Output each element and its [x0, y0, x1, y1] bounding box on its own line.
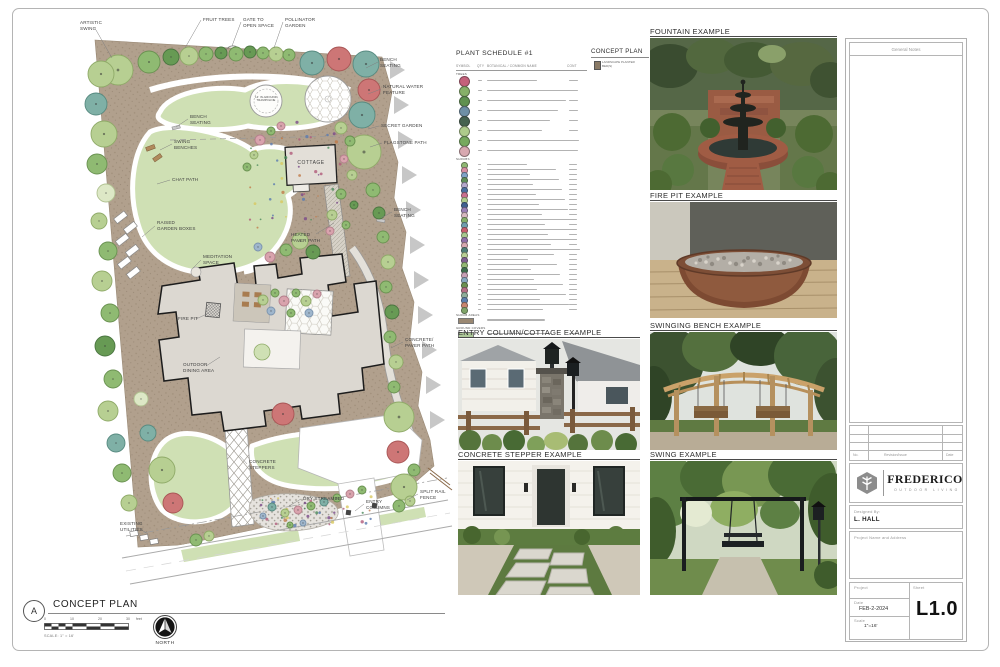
schedule-text: [569, 239, 577, 240]
schedule-text: [478, 274, 481, 275]
schedule-text: [478, 209, 481, 210]
schedule-text: [569, 259, 577, 260]
logo-box: FREDERICO OUTDOOR LIVING: [849, 463, 963, 503]
swing-example: SWING EXAMPLE: [650, 450, 837, 595]
schedule-text: [478, 164, 481, 165]
schedule-text: [569, 284, 577, 285]
schedule-text: [478, 269, 481, 270]
schedule-text: [569, 120, 578, 122]
plant-schedule: PLANT SCHEDULE #1 SYMBOL QTY BOTANICAL /…: [455, 50, 592, 342]
schedule-text: [487, 179, 559, 180]
site-plan: ARTISTIC SWINGFRUIT TREESGATE TO OPEN SP…: [0, 0, 455, 660]
schedule-text: [478, 229, 481, 230]
schedule-text: [569, 229, 577, 230]
schedule-text: [487, 184, 533, 185]
fire-pit-photo: [650, 202, 837, 318]
schedule-text: [478, 189, 481, 190]
schedule-text: [478, 100, 482, 102]
schedule-text: [569, 140, 578, 142]
schedule-text: [487, 274, 560, 275]
schedule-text: [478, 284, 481, 285]
schedule-text: [569, 169, 577, 170]
schedule-text: [478, 214, 481, 215]
schedule-text: [478, 309, 481, 310]
col-cont: CONT: [567, 64, 577, 68]
schedule-text: [487, 209, 568, 210]
schedule-text: [478, 174, 481, 175]
schedule-text: [478, 279, 481, 280]
schedule-text: [569, 110, 578, 112]
schedule-text: [487, 194, 536, 195]
schedule-text: [478, 259, 481, 260]
entry-column: [372, 503, 378, 509]
concrete-stepper-example-label: CONCRETE STEPPER EXAMPLE: [458, 450, 640, 460]
site-plan-drawing: [0, 0, 455, 660]
revision-table: No. Revision/Issue Date: [849, 425, 963, 461]
project-label: Project: [854, 585, 868, 590]
schedule-text: [569, 264, 577, 265]
schedule-text: [478, 264, 481, 265]
fire-pit-example: FIRE PIT EXAMPLE: [650, 191, 837, 318]
project-box: Project Name and Address: [849, 531, 963, 579]
schedule-text: [569, 80, 578, 82]
schedule-text: [487, 289, 537, 290]
swinging-bench-example-label: SWINGING BENCH EXAMPLE: [650, 321, 837, 331]
schedule-text: [487, 204, 539, 205]
schedule-text: [478, 299, 481, 300]
designer-box: Designed By: L. HALL: [849, 505, 963, 529]
schedule-text: [478, 224, 481, 225]
fire-pit: [205, 302, 220, 317]
schedule-text: [487, 199, 565, 200]
schedule-text: [569, 150, 578, 152]
detail-letter-badge: A: [23, 600, 45, 622]
schedule-text: [487, 249, 580, 250]
north-label: NORTH: [150, 641, 180, 646]
sheet-number: L1.0: [911, 598, 963, 621]
schedule-text: [569, 299, 577, 300]
schedule-text: [487, 254, 554, 255]
group-shrub-areas: SHRUB AREAS: [456, 313, 480, 317]
fountain-photo: [650, 38, 837, 190]
schedule-text: [569, 294, 577, 295]
group-shrubs: SHRUBS: [456, 157, 470, 161]
swinging-bench-photo: [650, 332, 837, 450]
schedule-text: [478, 169, 481, 170]
designed-by-label: Designed By:: [854, 509, 880, 514]
scale-value: 1"=16': [864, 624, 877, 629]
trampoline-label: 14' IN-GROUND TRAMPOLINE: [250, 96, 282, 103]
project-name-label: Project Name and Address: [854, 535, 906, 540]
schedule-text: [569, 249, 577, 250]
schedule-text: [487, 294, 566, 295]
schedule-text: [487, 164, 527, 165]
concrete-stepper-example: CONCRETE STEPPER EXAMPLE: [458, 450, 640, 595]
rev-col-revision: Revision/Issue: [884, 453, 907, 457]
schedule-text: [487, 214, 542, 215]
frederico-logo-icon: [855, 471, 879, 495]
schedule-text: [569, 204, 577, 205]
dining-patio: [243, 329, 300, 369]
scale-note: SCALE: 1" = 16': [44, 634, 74, 638]
cottage-label: COTTAGE: [286, 160, 336, 166]
schedule-text: [487, 100, 566, 102]
schedule-text: [487, 264, 557, 265]
schedule-text: [478, 110, 482, 112]
schedule-text: [478, 204, 481, 205]
concept-plan-legend: CONCEPT PLAN LANDSCAPE PLANTER BED(S): [591, 48, 649, 58]
scale-bar: [44, 623, 130, 631]
schedule-text: [569, 219, 577, 220]
schedule-text: [478, 80, 482, 82]
schedule-text: [487, 239, 577, 240]
scale-label: Scale: [854, 618, 865, 623]
schedule-text: [487, 140, 579, 142]
north-arrow-icon: [150, 613, 180, 641]
schedule-text: [569, 164, 577, 165]
schedule-text: [569, 209, 577, 210]
scale-tick: 0: [44, 617, 46, 621]
schedule-text: [478, 239, 481, 240]
schedule-text: [487, 189, 562, 190]
plant-schedule-title: PLANT SCHEDULE #1: [456, 50, 533, 57]
planter-bed-swatch: [594, 61, 601, 70]
schedule-header-rule: [456, 70, 587, 71]
schedule-text: [569, 194, 577, 195]
schedule-text: [487, 224, 545, 225]
schedule-text: [569, 234, 577, 235]
schedule-text: [478, 194, 481, 195]
schedule-text: [569, 184, 577, 185]
scale-tick: 30: [126, 617, 130, 621]
legend-title: CONCEPT PLAN: [591, 48, 649, 58]
schedule-text: [487, 284, 563, 285]
meditation-space: [191, 267, 201, 277]
schedule-text: [569, 244, 577, 245]
schedule-text: [569, 179, 577, 180]
brand-subtitle: OUTDOOR LIVING: [889, 488, 965, 492]
schedule-text: [569, 269, 577, 270]
schedule-text: [478, 90, 482, 92]
schedule-text: [569, 199, 577, 200]
schedule-text: [487, 304, 569, 305]
schedule-text: [478, 249, 481, 250]
schedule-text: [569, 309, 577, 310]
schedule-text: [478, 140, 482, 142]
entry-column-example-label: ENTRY COLUMN/COTTAGE EXAMPLE: [458, 328, 640, 338]
brand-name: FREDERICO: [887, 472, 963, 487]
schedule-text: [478, 254, 481, 255]
swing-photo: [650, 461, 837, 595]
schedule-text: [478, 219, 481, 220]
concrete-stepper-photo: [458, 461, 640, 595]
date-value: FEB-2-2024: [859, 606, 888, 612]
schedule-text: [478, 184, 481, 185]
general-notes-body: [849, 55, 963, 423]
schedule-text: [478, 150, 482, 152]
schedule-text: [569, 254, 577, 255]
col-name: BOTANICAL / COMMON NAME: [487, 64, 537, 68]
schedule-text: [487, 299, 540, 300]
shrub-areas-swatch: [458, 318, 474, 324]
schedule-text: [487, 150, 571, 152]
designer-name: L. HALL: [854, 516, 880, 523]
col-symbol: SYMBOL: [456, 64, 471, 68]
schedule-text: [487, 120, 550, 122]
date-label: Date: [854, 600, 863, 605]
entry-column-example: ENTRY COLUMN/COTTAGE EXAMPLE: [458, 328, 640, 450]
schedule-text: [569, 289, 577, 290]
scale-unit: feet: [136, 617, 142, 621]
secret-garden-patio: [305, 76, 351, 122]
rev-col-date: Date: [946, 453, 953, 457]
schedule-text: [478, 294, 481, 295]
schedule-text: [487, 174, 530, 175]
schedule-text: [569, 274, 577, 275]
col-qty: QTY: [477, 64, 484, 68]
schedule-text: [487, 309, 543, 310]
schedule-text: [487, 169, 556, 170]
schedule-text: [487, 80, 537, 82]
entry-column-photo: [458, 339, 640, 450]
schedule-text: [487, 234, 548, 235]
schedule-text: [569, 214, 577, 215]
plant-symbol: [459, 146, 470, 157]
swing-example-label: SWING EXAMPLE: [650, 450, 837, 460]
schedule-text: [569, 279, 577, 280]
rev-col-no: No.: [853, 453, 858, 457]
schedule-text: [478, 304, 481, 305]
schedule-text: [487, 130, 542, 132]
sheet-label: Sheet: [913, 585, 924, 590]
schedule-text: [569, 130, 578, 132]
schedule-text: [487, 319, 545, 321]
legend-item: LANDSCAPE PLANTER BED(S): [602, 61, 635, 69]
patio-tree: [254, 344, 270, 360]
schedule-text: [478, 120, 482, 122]
schedule-text: [487, 110, 558, 112]
fountain-example-label: FOUNTAIN EXAMPLE: [650, 27, 837, 37]
entry-column: [346, 510, 352, 516]
schedule-text: [487, 279, 534, 280]
fire-pit-example-label: FIRE PIT EXAMPLE: [650, 191, 837, 201]
schedule-text: [487, 269, 531, 270]
schedule-text: [478, 244, 481, 245]
concept-plan-sheet: { "plan": { "annotations": [ "ARTISTIC\n…: [0, 0, 1000, 667]
schedule-text: [569, 224, 577, 225]
scale-tick: 10: [70, 617, 74, 621]
schedule-text: [487, 244, 551, 245]
schedule-text: [569, 304, 577, 305]
schedule-text: [569, 174, 577, 175]
schedule-text: [487, 259, 528, 260]
title-block: General Notes No. Revision/Issue Date FR…: [845, 38, 967, 642]
schedule-text: [569, 90, 578, 92]
schedule-text: [478, 179, 481, 180]
swinging-bench-example: SWINGING BENCH EXAMPLE: [650, 321, 837, 450]
schedule-text: [487, 219, 571, 220]
scale-tick: 20: [98, 617, 102, 621]
fountain-example: FOUNTAIN EXAMPLE: [650, 27, 837, 190]
schedule-text: [569, 189, 577, 190]
schedule-text: [487, 90, 574, 92]
schedule-text: [478, 199, 481, 200]
schedule-text: [478, 234, 481, 235]
title-rule: [48, 613, 445, 614]
schedule-text: [478, 130, 482, 132]
schedule-text: [487, 229, 574, 230]
schedule-text: [478, 289, 481, 290]
sheet-info-box: Project Date FEB-2-2024 Scale 1"=16' She…: [849, 582, 963, 640]
schedule-text: [569, 100, 578, 102]
drawing-title: CONCEPT PLAN: [53, 599, 138, 610]
